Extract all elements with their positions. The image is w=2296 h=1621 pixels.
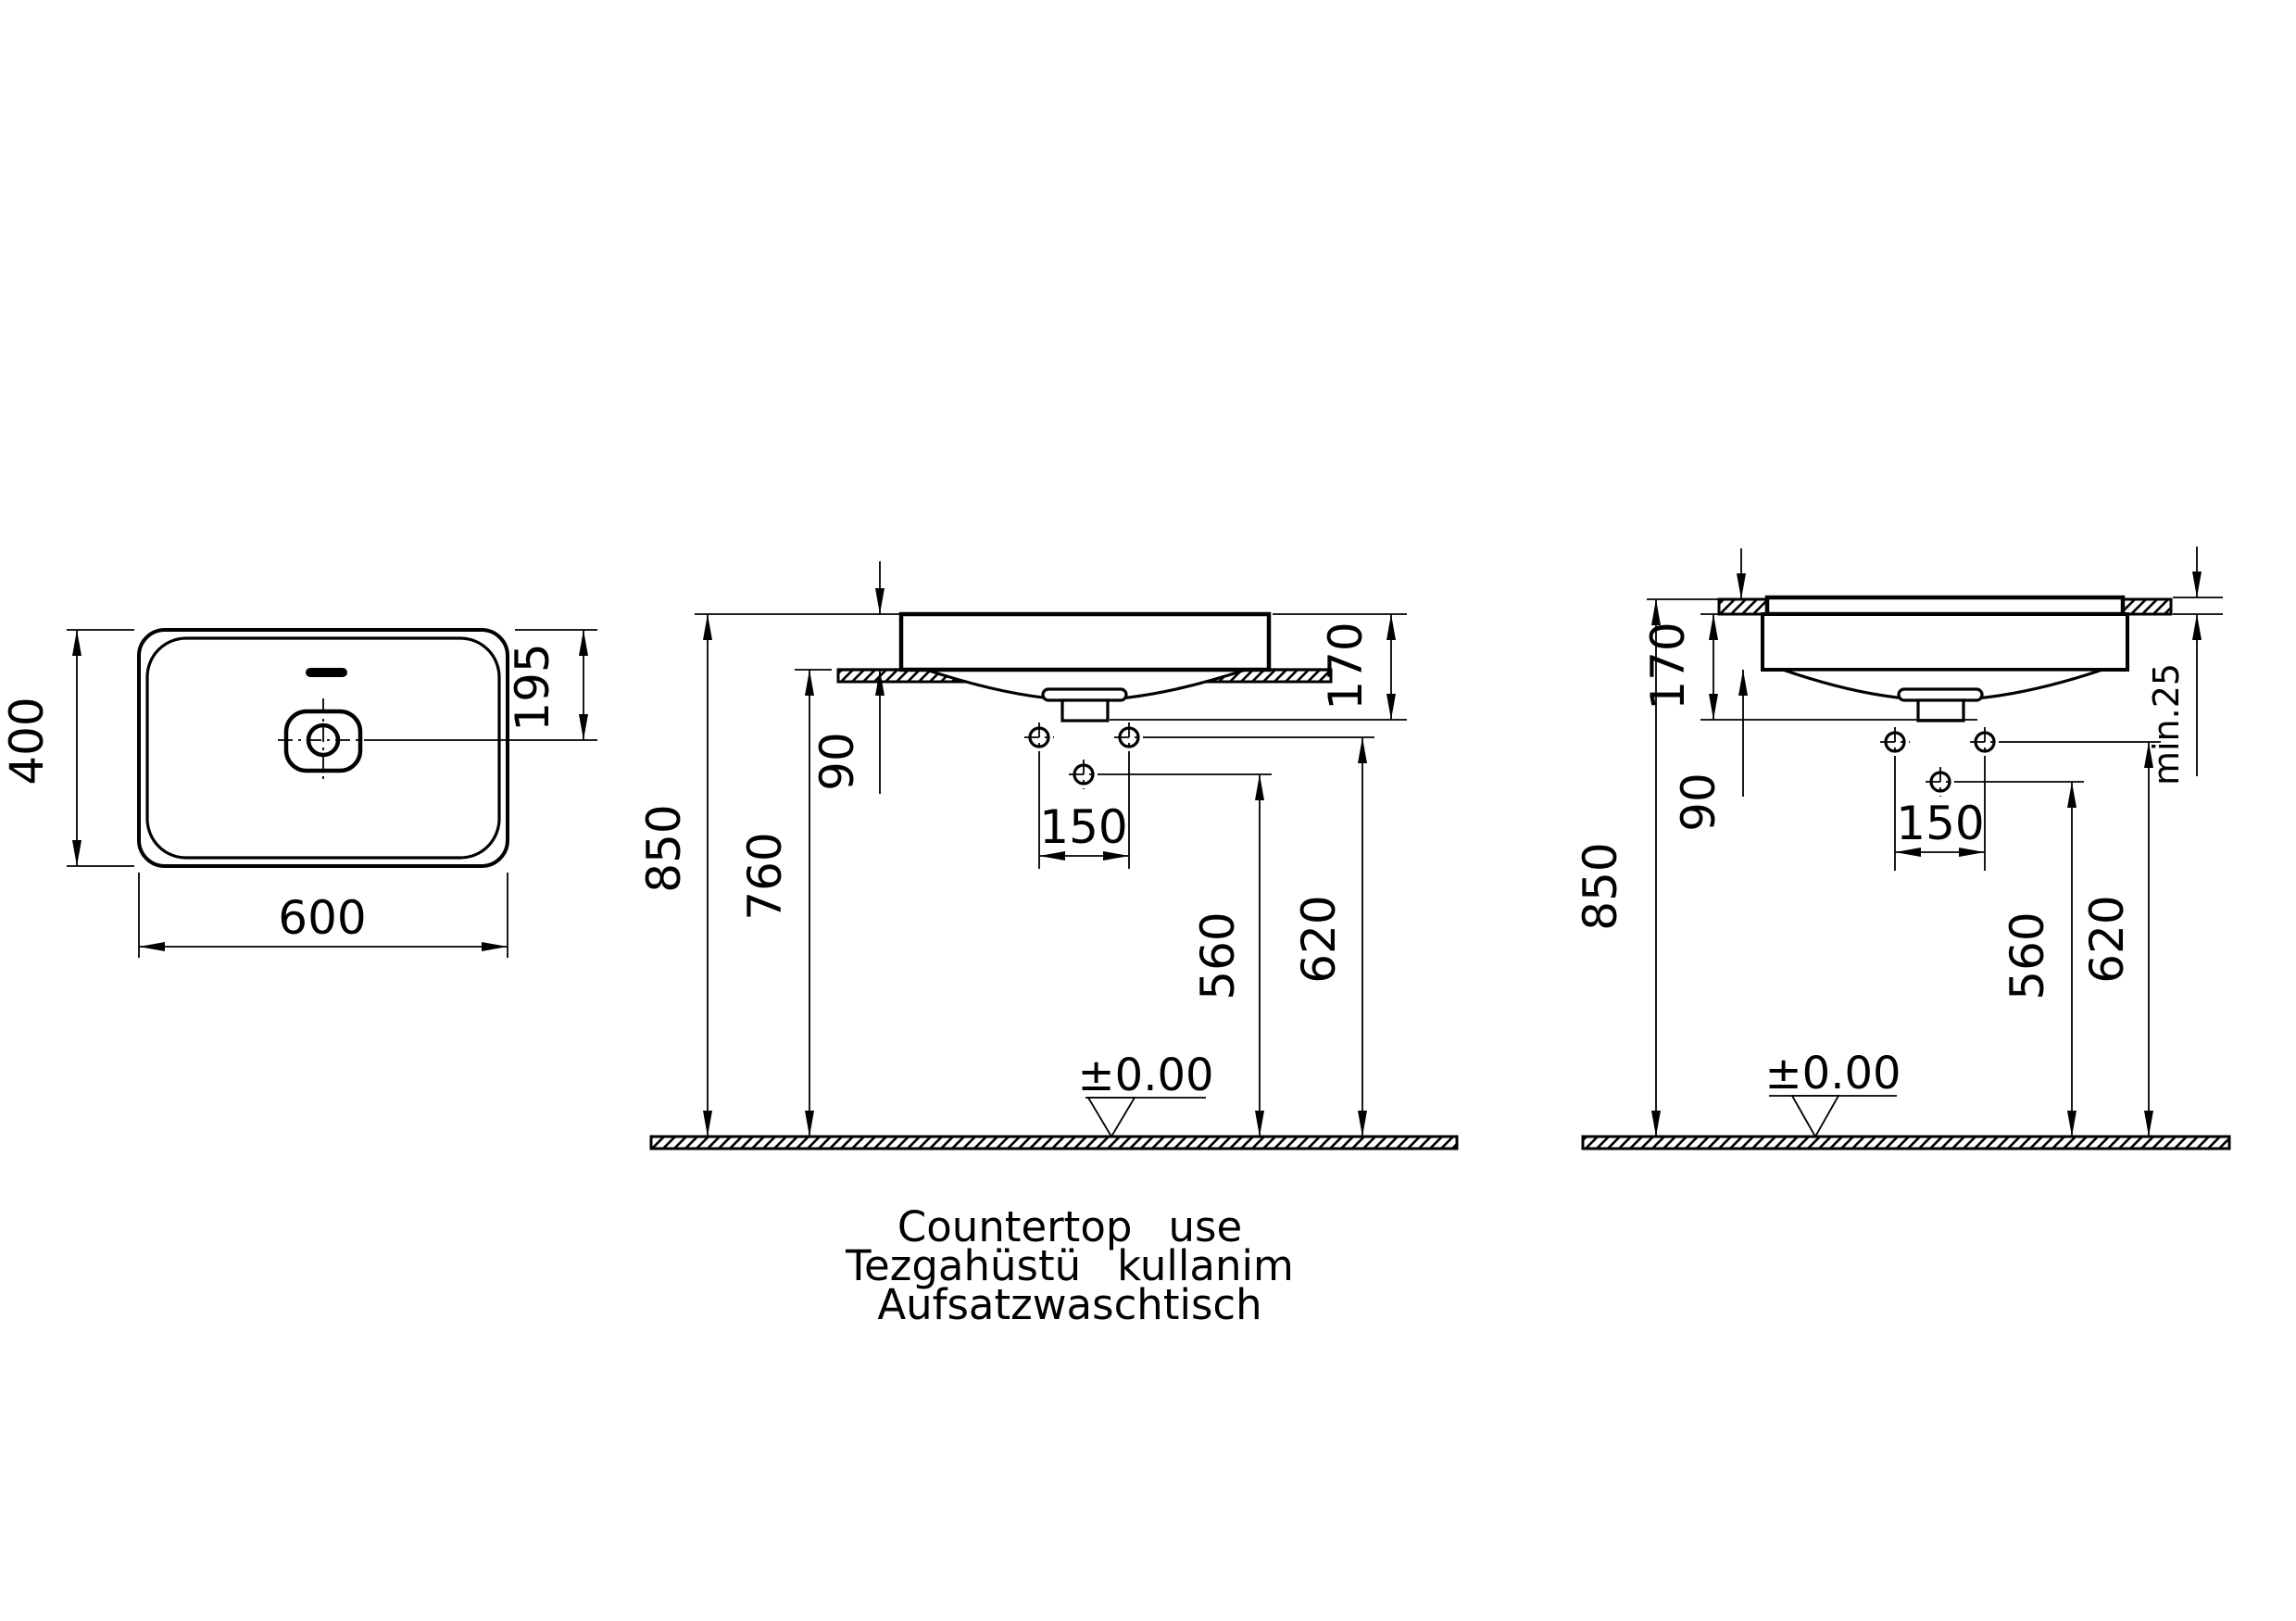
- faucet-holes: [1024, 723, 1144, 789]
- datum-label: ±0.00: [1764, 1048, 1901, 1100]
- dim-label-90: 90: [1672, 773, 1725, 832]
- countertop-stub-left: [1719, 599, 1767, 614]
- dim-label-620: 620: [1292, 895, 1346, 983]
- overflow-slot: [306, 668, 347, 677]
- top-view: 400 600 195: [0, 630, 597, 958]
- drain-tailpiece: [1918, 700, 1964, 721]
- dim-label-760: 760: [738, 832, 792, 920]
- spec-sheet: 400 600 195: [0, 0, 2296, 1621]
- floor-section: [651, 1137, 1457, 1149]
- dim-label-600: 600: [278, 891, 366, 945]
- dim-drain-offset-195: 195: [506, 630, 597, 740]
- floor-datum: ±0.00: [1077, 1049, 1213, 1137]
- dim-depth-400: 400: [0, 630, 134, 866]
- dim-label-560: 560: [1191, 911, 1245, 999]
- floor-datum: ±0.00: [1764, 1048, 1901, 1137]
- dim-label-150: 150: [1896, 797, 1984, 850]
- datum-triangle: [1792, 1096, 1838, 1137]
- sink-rim: [1767, 597, 2123, 614]
- drain-flange: [1043, 689, 1126, 700]
- dim-label-150: 150: [1039, 800, 1127, 854]
- front-view: ±0.00 850 760 90: [637, 561, 1457, 1149]
- floor-section: [1583, 1137, 2229, 1149]
- dim-min25: min.25: [2146, 547, 2223, 785]
- datum-triangle: [1088, 1098, 1135, 1137]
- caption: Countertop use Tezgahüstü kullanim Aufsa…: [845, 1202, 1294, 1329]
- caption-line-de: Aufsatzwaschtisch: [877, 1280, 1261, 1329]
- dim-label-195: 195: [506, 643, 559, 731]
- dim-label-850: 850: [1574, 842, 1627, 930]
- dim-label-170: 170: [1319, 622, 1373, 710]
- dim-width-600: 600: [139, 873, 508, 958]
- sink-body: [1763, 614, 2127, 670]
- dim-label-170: 170: [1641, 622, 1695, 710]
- dim-label-560: 560: [2001, 911, 2054, 999]
- dim-label-400: 400: [0, 697, 54, 785]
- technical-drawing: 400 600 195: [0, 0, 2296, 1621]
- dim-label-620: 620: [2080, 895, 2134, 983]
- dim-label-90: 90: [810, 732, 864, 791]
- drain-tailpiece: [1062, 700, 1108, 721]
- dim-label-850: 850: [637, 804, 691, 892]
- faucet-holes: [1880, 727, 2000, 797]
- countertop-stub-right: [2123, 599, 2171, 614]
- datum-label: ±0.00: [1077, 1049, 1213, 1101]
- drain-flange: [1899, 689, 1982, 700]
- sink-body: [901, 614, 1269, 670]
- recessed-view: ±0.00 850 170 90: [1574, 547, 2229, 1149]
